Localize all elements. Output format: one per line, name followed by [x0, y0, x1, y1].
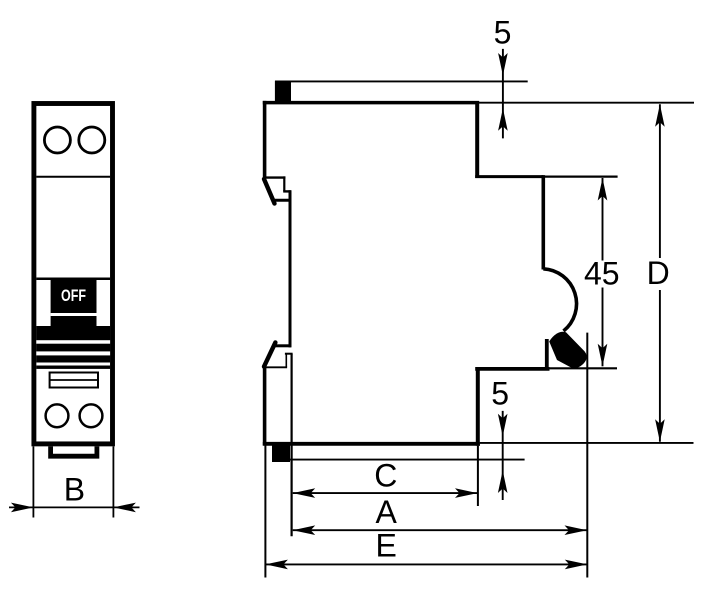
svg-text:5: 5	[491, 376, 509, 412]
svg-text:E: E	[376, 528, 397, 564]
svg-text:C: C	[374, 458, 397, 494]
svg-text:A: A	[376, 494, 398, 530]
svg-text:OFF: OFF	[61, 286, 86, 305]
svg-text:5: 5	[494, 15, 512, 51]
svg-text:B: B	[64, 471, 85, 507]
svg-text:45: 45	[584, 255, 620, 291]
svg-text:D: D	[647, 255, 670, 291]
